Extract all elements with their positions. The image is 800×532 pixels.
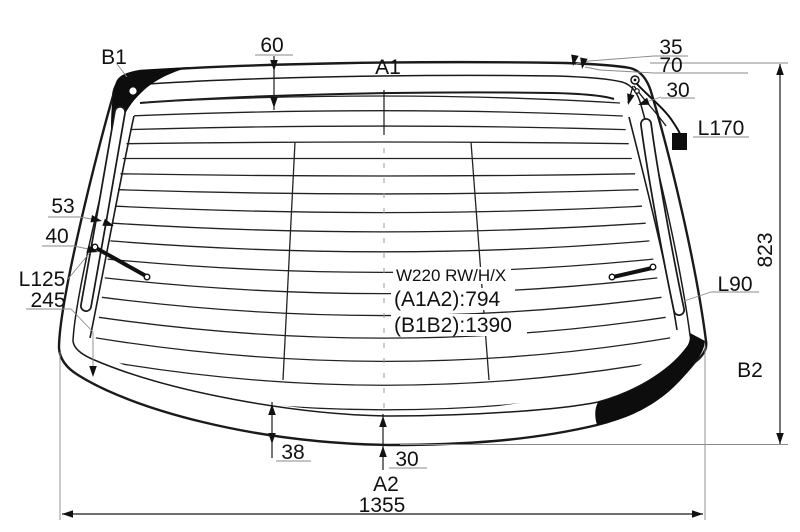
part-label-l170: L170 <box>698 117 745 140</box>
molding-strip-right <box>646 124 679 310</box>
defroster-line <box>127 126 626 130</box>
antenna-terminal-dot <box>634 79 637 82</box>
antenna-right-end1 <box>609 274 615 280</box>
dim-left-53: 53 <box>51 195 74 218</box>
defroster-line <box>110 241 649 252</box>
leader-line <box>600 70 654 73</box>
arrowhead <box>62 510 73 518</box>
defroster-line <box>102 297 662 315</box>
dim-top-band: 60 <box>260 34 283 57</box>
leader-line <box>585 67 600 70</box>
part-label-l90: L90 <box>717 273 752 296</box>
arrowhead <box>379 446 387 457</box>
glass-technical-drawing: B1 60 A1 35 70 30 L170 53 40 L125 245 W2… <box>0 0 800 532</box>
dim-top-right-30: 30 <box>666 79 689 102</box>
glass-diagram-svg: B1 60 A1 35 70 30 L170 53 40 L125 245 W2… <box>0 0 800 532</box>
arrowhead <box>268 433 276 444</box>
defroster-line <box>113 223 646 232</box>
arrowhead <box>776 433 784 444</box>
dim-top-right-70: 70 <box>659 54 682 77</box>
defroster-line <box>96 338 670 362</box>
zone-divider-right <box>471 142 489 380</box>
defroster-line <box>129 111 623 116</box>
defroster-grid <box>86 96 684 435</box>
dim-b1b2: (B1B2):1390 <box>394 314 512 337</box>
dim-overall-width: 1355 <box>359 494 406 517</box>
defroster-line <box>105 278 658 294</box>
defroster-line <box>118 190 639 194</box>
part-label-l125: L125 <box>19 268 66 291</box>
arrowhead <box>569 55 578 67</box>
antenna-right-end2 <box>650 264 656 270</box>
antenna-element-right <box>609 264 656 280</box>
defroster-top-boundary <box>140 92 614 103</box>
corner-label-a2: A2 <box>373 473 399 496</box>
defroster-line <box>116 206 643 212</box>
arrowhead <box>379 416 387 427</box>
molding-right-body <box>646 124 679 310</box>
arrowhead <box>89 366 97 377</box>
antenna-right-bar <box>613 268 652 277</box>
dim-bottom-30: 30 <box>395 448 418 471</box>
defroster-line <box>125 142 629 144</box>
dim-overall-height: 823 <box>754 232 777 267</box>
arrowhead <box>776 64 784 75</box>
antenna-left-end2 <box>144 274 150 280</box>
corner-label-b1: B1 <box>101 46 127 69</box>
defroster-line <box>131 96 620 103</box>
arrowhead <box>270 97 278 108</box>
arrowhead <box>692 510 703 518</box>
dim-a1a2: (A1A2):794 <box>394 288 501 311</box>
glass-outer-outline <box>59 62 706 445</box>
zone-divider-left <box>283 142 295 380</box>
antenna-terminal-2 <box>635 89 639 93</box>
dim-bottom-38: 38 <box>281 441 304 464</box>
mount-hole-top-left <box>129 87 136 94</box>
defroster-line <box>108 259 654 272</box>
connector-plug <box>672 133 687 150</box>
dim-left-245: 245 <box>30 289 65 312</box>
model-code: W220 RW/H/X <box>396 266 506 285</box>
dim-left-40: 40 <box>45 225 68 248</box>
corner-label-b2: B2 <box>737 359 763 382</box>
glass-body <box>59 62 706 445</box>
arrowhead <box>624 93 634 106</box>
defroster-line <box>86 403 684 435</box>
defroster-line <box>120 174 635 176</box>
corner-label-a1: A1 <box>375 56 401 79</box>
leader-line <box>589 56 654 61</box>
defroster-line <box>99 317 666 338</box>
